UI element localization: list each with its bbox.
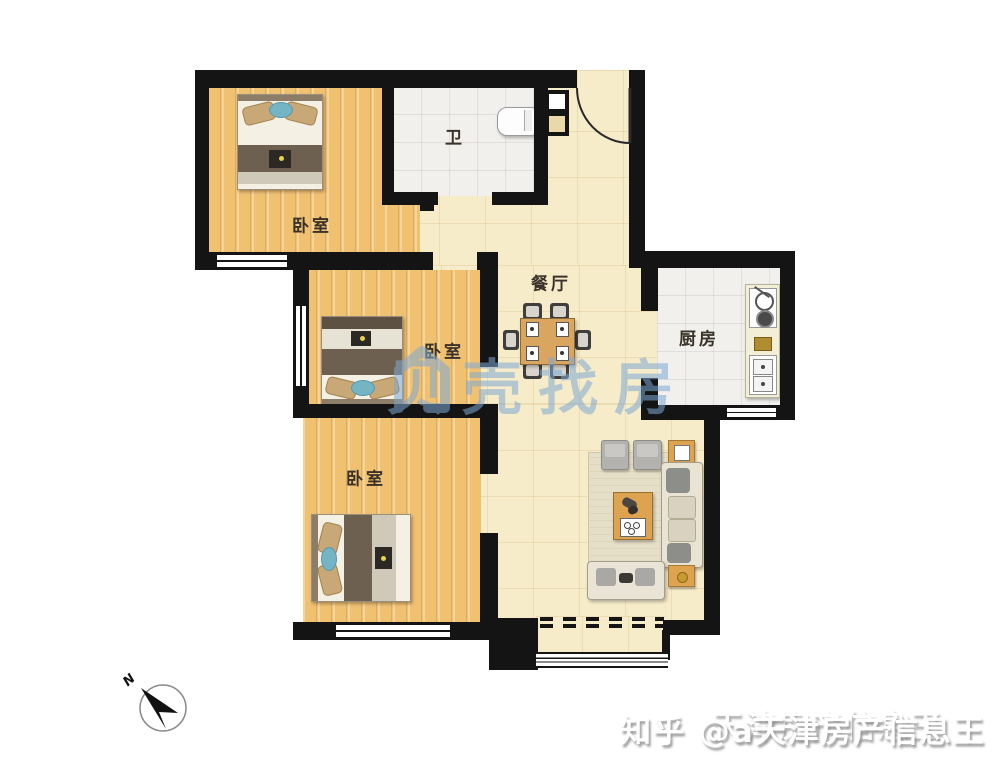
round-cushion (269, 102, 293, 118)
sofa-cushion (668, 496, 696, 519)
bedroom-top-floor-nook (385, 205, 420, 254)
dining-table (520, 318, 575, 365)
sofa-cushion (667, 543, 691, 563)
cooktop (749, 288, 777, 328)
bed-frame (322, 317, 402, 329)
duct-shaft (545, 112, 569, 136)
floor-plan: 卧室 卧室 卧室 卫 餐厅 厨房 贝壳找房 N 天津房产信息王 知乎 @a天津房… (0, 0, 1000, 767)
wall (629, 70, 645, 266)
dining-chair (575, 330, 591, 350)
window (217, 252, 287, 270)
bed-bedroom-middle (321, 316, 403, 406)
wall (780, 251, 795, 420)
balcony-window (536, 652, 668, 668)
room-label-bedroom-middle: 卧室 (424, 338, 464, 363)
entry-threshold-floor (577, 70, 629, 90)
sofa-cushion (596, 568, 616, 586)
compass-north-label: N (120, 671, 138, 689)
wall (480, 533, 498, 625)
dining-chair (503, 330, 519, 350)
wall (704, 405, 720, 635)
door-stop (420, 200, 434, 211)
ottoman (601, 440, 629, 470)
round-cushion (321, 547, 337, 571)
decor (627, 505, 639, 516)
wall (641, 378, 658, 420)
wall (293, 404, 498, 418)
compass-north-arrow-icon (141, 688, 178, 729)
bed-bedroom-bottom (311, 514, 411, 602)
compass-circle-icon (140, 685, 186, 731)
kitchen-counter (745, 284, 780, 398)
place-setting (556, 322, 569, 337)
headboard (312, 515, 318, 601)
side-table (668, 565, 695, 587)
tray (620, 518, 646, 537)
toilet (497, 107, 535, 136)
balcony-opening-dashed (540, 624, 664, 628)
balcony-opening-dashed (540, 617, 664, 621)
place-setting (526, 322, 539, 337)
sofa-cushion (668, 519, 696, 542)
ottoman (633, 440, 662, 470)
tv-light (360, 336, 365, 341)
sofa-cushion (666, 468, 690, 493)
room-label-bedroom-top: 卧室 (292, 212, 332, 237)
duct-shaft (545, 90, 569, 113)
window (727, 405, 776, 420)
zhihu-watermark: 知乎 @a天津房产信息王 (620, 706, 986, 751)
controls (754, 337, 772, 351)
blanket (322, 349, 402, 375)
headboard (238, 95, 322, 101)
foot-bench (238, 172, 322, 184)
room-label-bathroom: 卫 (445, 124, 465, 149)
wall (195, 70, 209, 270)
tv-light (381, 556, 386, 561)
double-sink (749, 355, 777, 395)
wall (382, 86, 394, 198)
coffee-table (613, 492, 653, 540)
wall (480, 252, 498, 367)
decor (677, 572, 688, 583)
toilet-tank (524, 110, 532, 131)
room-label-bedroom-bottom: 卧室 (346, 465, 386, 490)
blanket (344, 515, 372, 601)
place-setting (556, 346, 569, 361)
place-setting (526, 346, 539, 361)
wall (775, 405, 795, 420)
wall (480, 418, 498, 474)
sofa-cushion (635, 568, 655, 586)
decor (619, 573, 633, 583)
lamp (674, 445, 690, 461)
bed-bedroom-top (237, 94, 323, 190)
loveseat (587, 561, 665, 600)
window (293, 306, 309, 386)
room-label-dining: 餐厅 (531, 270, 571, 295)
window (336, 622, 450, 640)
wall (663, 620, 720, 635)
room-label-kitchen: 厨房 (679, 325, 719, 350)
sofa (661, 462, 703, 568)
round-cushion (351, 380, 375, 396)
dining-set (503, 303, 591, 379)
tv-light (279, 156, 284, 161)
wall (641, 251, 658, 311)
